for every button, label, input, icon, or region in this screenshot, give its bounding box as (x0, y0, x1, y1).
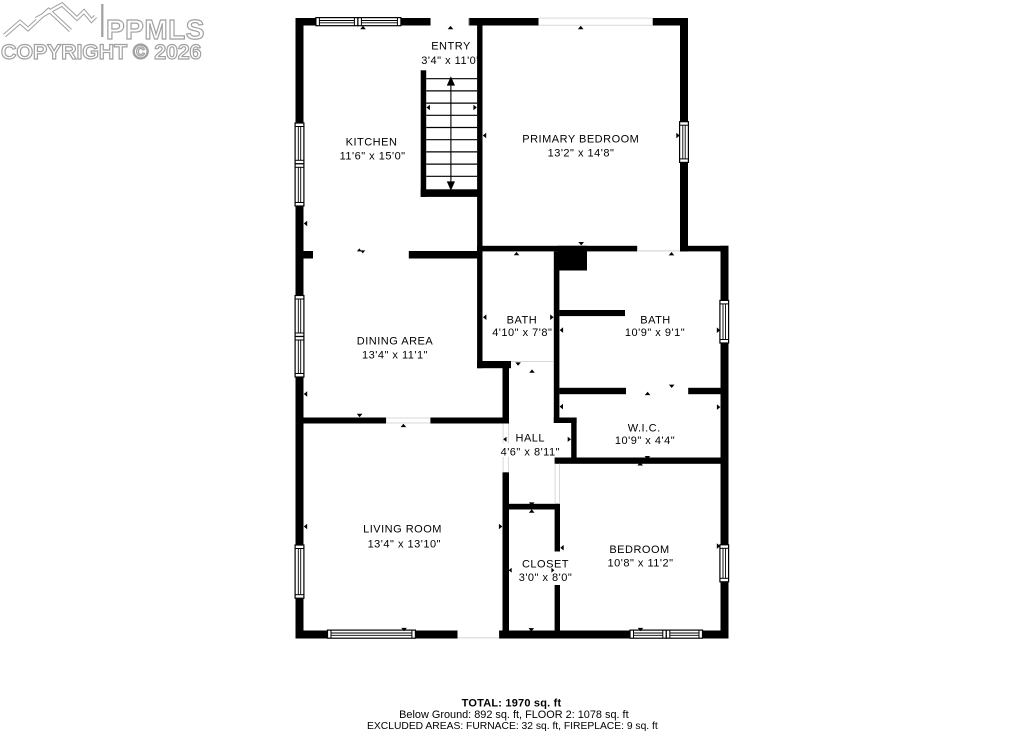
svg-text:10'9" x 4'4": 10'9" x 4'4" (615, 435, 675, 447)
svg-text:DINING AREA: DINING AREA (357, 335, 434, 347)
svg-text:EXCLUDED AREAS: FURNACE: 32 sq: EXCLUDED AREAS: FURNACE: 32 sq. ft, FIRE… (367, 721, 658, 732)
svg-text:3'4" x 11'0": 3'4" x 11'0" (421, 55, 480, 67)
svg-text:4'6" x 8'11": 4'6" x 8'11" (501, 446, 560, 458)
svg-text:BATH: BATH (507, 315, 538, 327)
svg-text:13'4" x 13'10": 13'4" x 13'10" (368, 539, 441, 551)
svg-text:W.I.C.: W.I.C. (628, 423, 661, 435)
svg-text:11'6" x 15'0": 11'6" x 15'0" (340, 150, 406, 162)
svg-text:13'4" x 11'1": 13'4" x 11'1" (362, 350, 428, 362)
svg-text:4'10" x 7'8": 4'10" x 7'8" (492, 327, 552, 339)
svg-text:TOTAL: 1970 sq. ft: TOTAL: 1970 sq. ft (462, 697, 562, 709)
svg-text:LIVING ROOM: LIVING ROOM (363, 524, 442, 536)
svg-text:KITCHEN: KITCHEN (346, 136, 398, 148)
svg-text:Below Ground: 892 sq. ft, FLOO: Below Ground: 892 sq. ft, FLOOR 2: 1078 … (399, 709, 628, 721)
svg-text:CLOSET: CLOSET (522, 559, 569, 571)
svg-text:HALL: HALL (516, 433, 546, 445)
svg-text:13'2" x 14'8": 13'2" x 14'8" (548, 147, 615, 159)
svg-text:3'0" x 8'0": 3'0" x 8'0" (519, 572, 573, 584)
svg-text:10'8" x 11'2": 10'8" x 11'2" (607, 558, 673, 570)
svg-text:BATH: BATH (640, 315, 671, 327)
svg-text:COPYRIGHT © 2026: COPYRIGHT © 2026 (1, 40, 201, 64)
svg-text:10'9" x 9'1": 10'9" x 9'1" (625, 327, 685, 339)
svg-text:PRIMARY BEDROOM: PRIMARY BEDROOM (522, 134, 639, 146)
svg-text:BEDROOM: BEDROOM (609, 544, 669, 556)
svg-text:ENTRY: ENTRY (431, 41, 471, 53)
